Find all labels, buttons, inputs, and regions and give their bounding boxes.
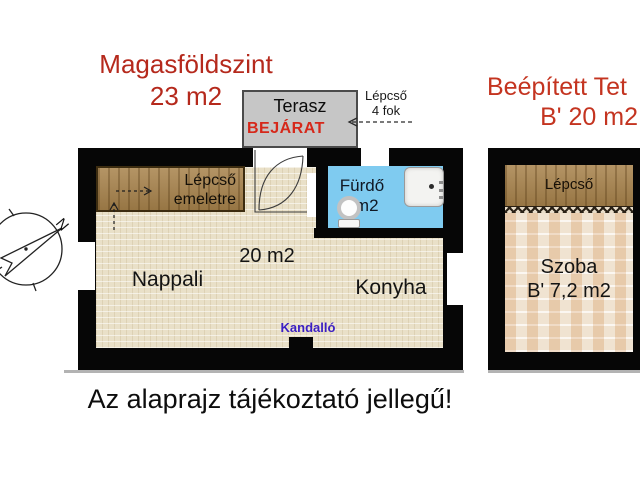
attic-stairs-label: Lépcső [505,176,633,193]
plan-shadow-line [64,370,464,373]
attic-room-surface: Szoba B' 7,2 m2 [505,213,633,352]
entrance-door-opening [253,148,307,167]
window-opening-top [361,148,389,167]
attic-room-line2: B' 7,2 m2 [505,279,633,303]
entrance-arrow [349,118,412,126]
title-main-line1: Magasföldszint [78,48,294,80]
bathroom-label: Fürdő 3m2 [322,176,402,216]
bathroom-door-opening [307,173,316,217]
exterior-stairs-note: Lépcső 4 fok [356,88,416,118]
attic-room-label: Szoba B' 7,2 m2 [505,255,633,303]
toilet-tank-icon [338,219,360,228]
kitchen-label: Konyha [348,276,434,300]
stairs-to-upper-floor: Lépcső emeletre [96,166,245,212]
area-label: 20 m2 [217,245,317,268]
stairs-label-line2: emeletre [98,190,236,209]
plan-shadow-line [488,370,640,373]
stairs-label-line1: Lépcső [98,171,236,190]
attic-floor-plan: Lépcső Szoba B' 7,2 m2 [488,148,640,370]
compass-north-label: N [52,215,72,234]
attic-room-line1: Szoba [505,255,633,279]
faucet-icon [439,196,443,199]
terrace-label: Terasz [244,96,356,117]
shower-tray-icon [404,167,444,207]
footer-disclaimer: Az alaprajz tájékoztató jellegű! [58,384,482,415]
title-attic-line1: Beépített Tet [487,72,640,102]
floorplan-page: Magasföldszint 23 m2 Beépített Tet B' 20… [0,0,640,480]
faucet-icon [439,189,443,192]
entrance-label: BEJÁRAT [244,120,356,138]
toilet-icon [337,196,361,220]
exterior-stairs-line1: Lépcső [356,88,416,103]
title-attic-line2: B' 20 m2 [487,102,640,132]
window-opening-right [447,253,463,305]
bathroom-wall-bottom [314,228,463,238]
fireplace-block [289,337,313,350]
living-room-label: Nappali [120,268,215,292]
faucet-icon [439,181,443,184]
fireplace-label: Kandalló [270,320,346,335]
drain-icon [429,184,434,189]
window-opening-left [78,242,95,290]
title-attic: Beépített Tet B' 20 m2 [487,72,640,132]
exterior-stairs-line2: 4 fok [356,103,416,118]
terrace-box: Terasz BEJÁRAT [242,90,358,148]
attic-stairs-band: Lépcső [505,165,633,207]
compass-icon: N [0,209,72,291]
